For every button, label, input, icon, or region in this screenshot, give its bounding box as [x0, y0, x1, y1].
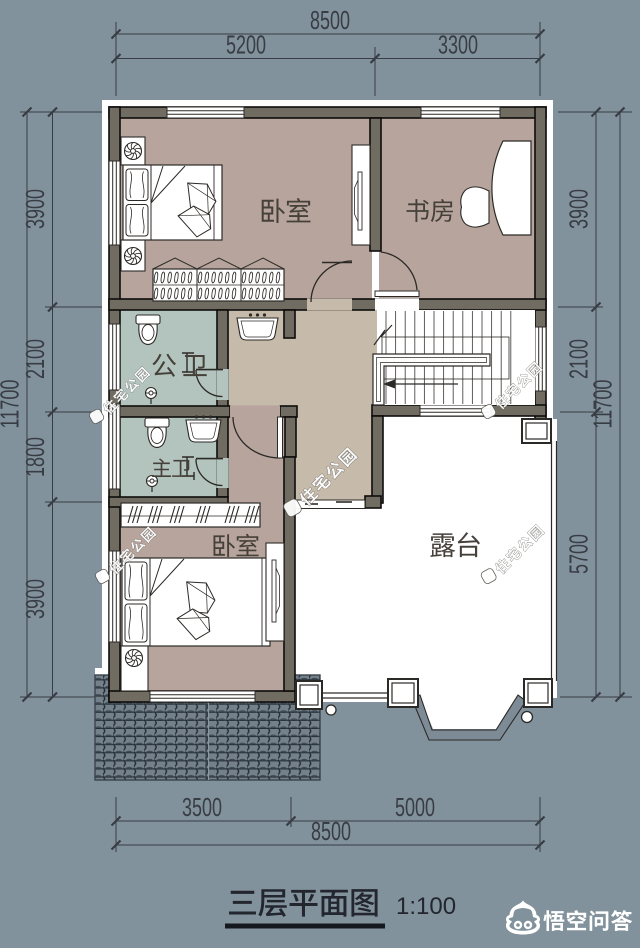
- svg-text:11700: 11700: [0, 380, 25, 429]
- svg-text:8500: 8500: [310, 5, 350, 35]
- svg-text:8500: 8500: [311, 816, 351, 846]
- svg-text:3900: 3900: [20, 189, 50, 229]
- svg-text:2100: 2100: [20, 339, 50, 379]
- svg-text:5700: 5700: [564, 534, 594, 574]
- svg-text:1:100: 1:100: [396, 893, 456, 920]
- svg-text:1800: 1800: [20, 437, 50, 477]
- svg-text:11700: 11700: [588, 380, 618, 429]
- svg-text:2100: 2100: [564, 339, 594, 379]
- svg-text:5000: 5000: [395, 792, 435, 822]
- svg-text:3900: 3900: [20, 579, 50, 619]
- svg-text:3300: 3300: [438, 30, 478, 60]
- svg-text:3900: 3900: [564, 189, 594, 229]
- svg-text:5200: 5200: [226, 30, 266, 60]
- svg-text:3500: 3500: [182, 792, 222, 822]
